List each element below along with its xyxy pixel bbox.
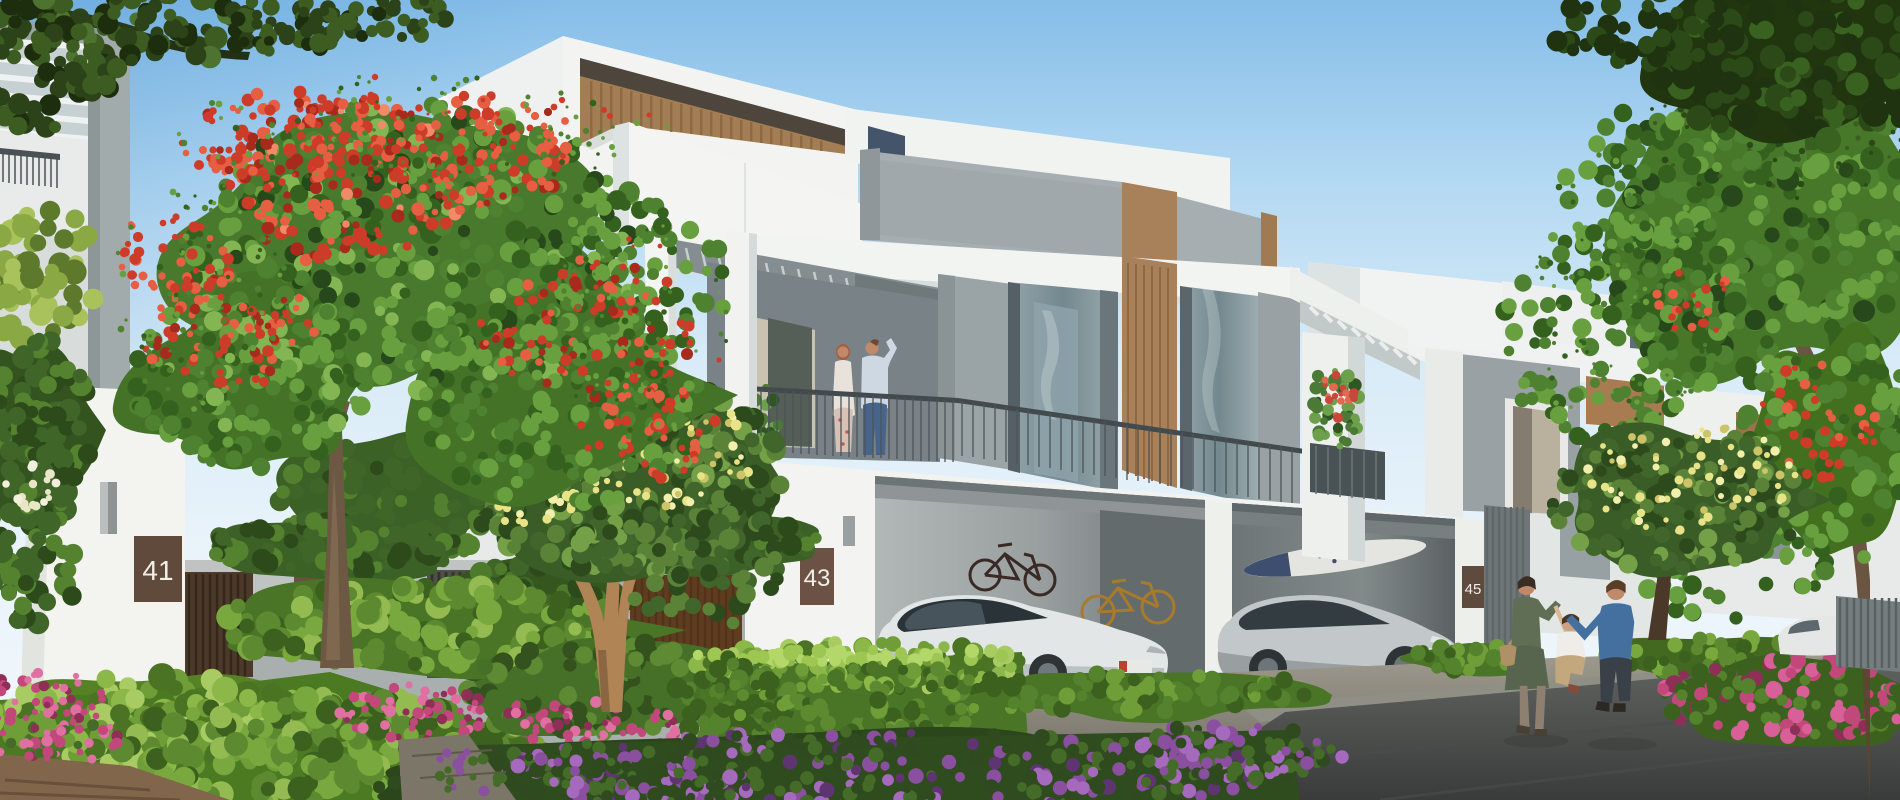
svg-text:43: 43	[804, 565, 831, 592]
svg-text:45: 45	[1465, 581, 1482, 598]
svg-text:41: 41	[142, 555, 173, 586]
